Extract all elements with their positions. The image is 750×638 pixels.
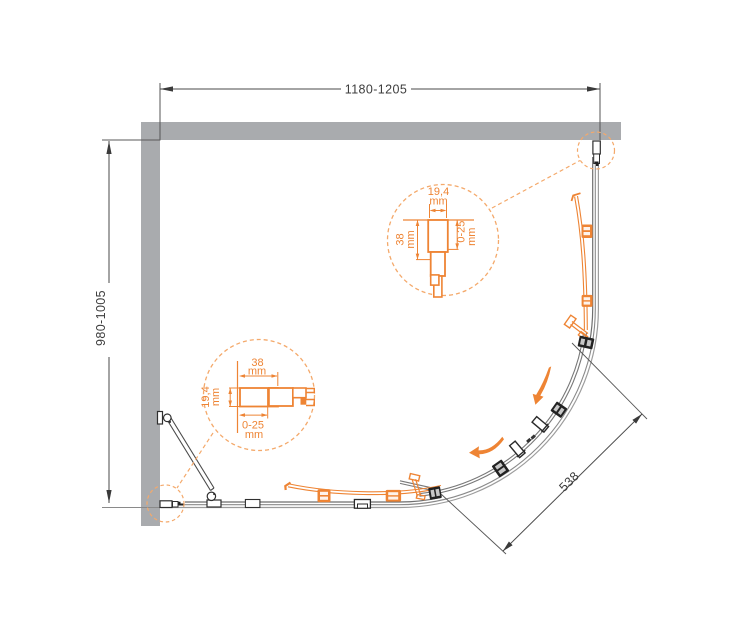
svg-text:mm: mm: [466, 228, 478, 246]
svg-text:mm: mm: [245, 429, 263, 441]
svg-text:1180-1205: 1180-1205: [345, 83, 407, 97]
svg-text:mm: mm: [405, 230, 417, 248]
svg-text:mm: mm: [248, 366, 266, 378]
svg-text:mm: mm: [429, 196, 447, 208]
svg-text:980-1005: 980-1005: [94, 290, 108, 346]
svg-text:mm: mm: [210, 388, 222, 406]
